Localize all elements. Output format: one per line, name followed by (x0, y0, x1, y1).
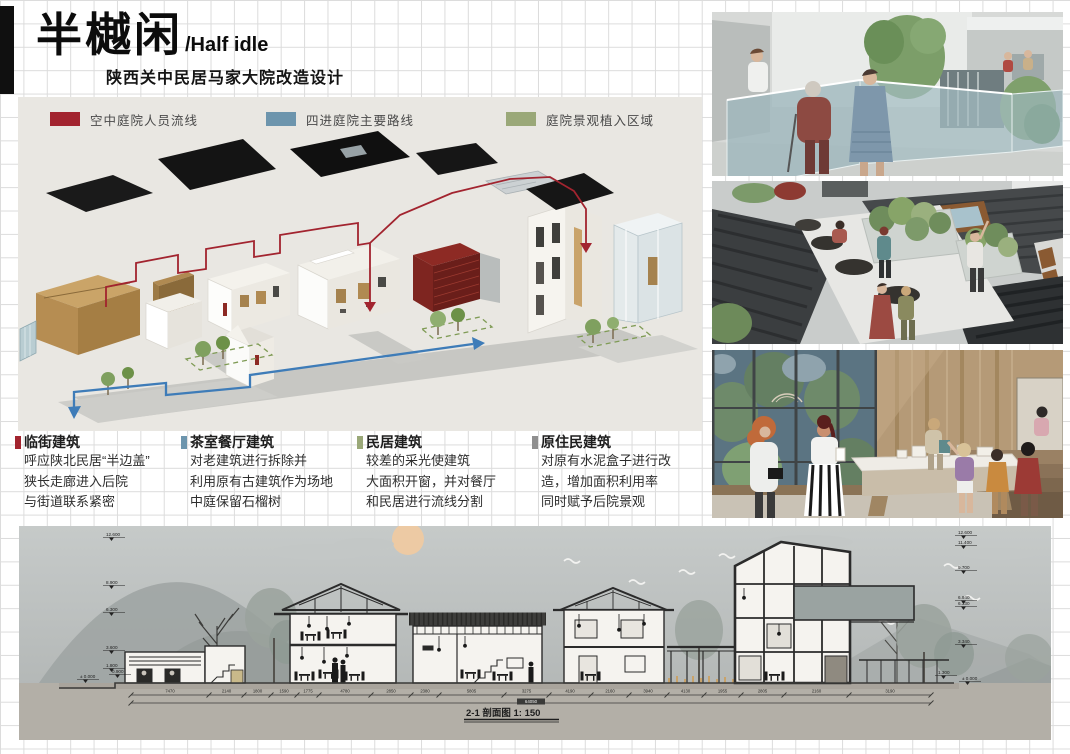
svg-text:5805: 5805 (467, 689, 477, 694)
legend-item: 空中庭院人员流线 (50, 111, 198, 127)
svg-text:6.940: 6.940 (958, 595, 970, 600)
annotation-line: 呼应陕北民居“半边盖” (24, 451, 150, 472)
annotation-block: 民居建筑较差的采光使建筑大面积开窗，并对餐厅和民居进行流线分割 (357, 433, 496, 518)
page-subtitle: 陕西关中民居马家大院改造设计 (106, 64, 344, 88)
glass-volumes (614, 213, 682, 323)
svg-text:2140: 2140 (222, 689, 232, 694)
annotation-line: 造，增加面积利用率 (541, 472, 671, 493)
wooden-building (18, 97, 140, 361)
svg-text:2160: 2160 (605, 689, 615, 694)
annotation-color-marker (357, 436, 363, 449)
svg-text:2160: 2160 (812, 689, 822, 694)
annotation-title: 原住民建筑 (532, 433, 671, 451)
svg-text:6.330: 6.330 (958, 601, 970, 606)
restaurant-building (298, 245, 400, 329)
svg-text:12.600: 12.600 (958, 530, 972, 535)
legend-swatch (266, 112, 296, 126)
annotation-title: 茶室餐厅建筑 (181, 433, 333, 451)
svg-text:± 0.000: ± 0.000 (80, 674, 96, 679)
svg-text:1775: 1775 (303, 689, 313, 694)
annotation-block: 临街建筑呼应陕北民居“半边盖”狭长走廊进入后院与街道联系紧密 (15, 433, 150, 518)
legend-swatch (506, 112, 536, 126)
annotation-line: 较差的采光使建筑 (366, 451, 496, 472)
legend-item: 四进庭院主要路线 (266, 111, 414, 127)
white-volume-cluster (146, 272, 202, 349)
svg-text:9.700: 9.700 (958, 565, 970, 570)
svg-text:7470: 7470 (165, 689, 175, 694)
legend-label: 空中庭院人员流线 (90, 110, 198, 129)
svg-text:1955: 1955 (718, 689, 728, 694)
annotation-color-marker (15, 436, 21, 449)
svg-text:1.300: 1.300 (938, 670, 950, 675)
title-chinese: 半樾闲 (36, 9, 183, 61)
axonometric-diagram-panel: 空中庭院人员流线四进庭院主要路线庭院景观植入区域 (18, 97, 702, 431)
annotation-block: 原住民建筑对原有水泥盒子进行改造，增加面积利用率同时赋予后院景观 (532, 433, 671, 518)
annotation-line: 对原有水泥盒子进行改 (541, 451, 671, 472)
svg-text:1590: 1590 (279, 689, 289, 694)
annotation-line: 狭长走廊进入后院 (24, 472, 150, 493)
legend-label: 四进庭院主要路线 (306, 110, 414, 129)
svg-text:3275: 3275 (522, 689, 532, 694)
svg-text:1800: 1800 (253, 689, 263, 694)
svg-text:± 0.000: ± 0.000 (962, 676, 978, 681)
svg-text:64050: 64050 (525, 699, 538, 704)
svg-text:3.340: 3.340 (958, 639, 970, 644)
svg-text:3.600: 3.600 (106, 645, 118, 650)
annotation-line: 和民居进行流线分割 (366, 492, 496, 513)
roof-terrace-render (712, 181, 1063, 344)
svg-text:3940: 3940 (643, 689, 653, 694)
window-wall (712, 350, 878, 495)
annotation-block: 茶室餐厅建筑对老建筑进行拆除并利用原有古建筑作为场地中庭保留石榴树 (181, 433, 333, 518)
svg-text:3190: 3190 (885, 689, 895, 694)
svg-text:2805: 2805 (758, 689, 768, 694)
section-drawing-panel: 12.6008.9006.3003.6001.8000.900± 0.000 1… (19, 526, 1051, 740)
tea-house-interior-render (712, 350, 1063, 518)
svg-text:6.300: 6.300 (106, 607, 118, 612)
svg-text:11.400: 11.400 (958, 540, 972, 545)
annotation-color-marker (181, 436, 187, 449)
presentation-board: 半樾闲/Half idle 陕西关中民居马家大院改造设计 (0, 0, 1070, 754)
svg-text:1.800: 1.800 (106, 663, 118, 668)
svg-text:2850: 2850 (386, 689, 396, 694)
svg-text:2-1 剖面图 1: 150: 2-1 剖面图 1: 150 (466, 707, 540, 719)
annotation-line: 同时赋予后院景观 (541, 492, 671, 513)
svg-text:4190: 4190 (565, 689, 575, 694)
annotation-line: 利用原有古建筑作为场地 (190, 472, 333, 493)
street-plan (58, 329, 698, 423)
svg-text:4780: 4780 (340, 689, 350, 694)
axonometric-diagram (18, 97, 702, 431)
annotation-line: 中庭保留石榴树 (190, 492, 333, 513)
annotation-line: 与街道联系紧密 (24, 492, 150, 513)
tea-house-building (208, 263, 290, 333)
annotation-line: 对老建筑进行拆除并 (190, 451, 333, 472)
legend-label: 庭院景观植入区域 (546, 110, 654, 129)
exploded-roofs (46, 131, 614, 212)
svg-text:12.600: 12.600 (106, 532, 120, 537)
red-brick-building (413, 243, 500, 312)
header-accent-bar (0, 6, 14, 94)
annotation-color-marker (532, 436, 538, 449)
annotation-title: 民居建筑 (357, 433, 496, 451)
annotation-title: 临街建筑 (15, 433, 150, 451)
svg-text:4130: 4130 (681, 689, 691, 694)
annotation-line: 大面积开窗，并对餐厅 (366, 472, 496, 493)
page-title: 半樾闲/Half idle (36, 10, 268, 61)
title-english: /Half idle (185, 34, 268, 56)
tall-residence-building (528, 205, 602, 333)
svg-text:0.900: 0.900 (112, 669, 124, 674)
legend-item: 庭院景观植入区域 (506, 111, 654, 127)
svg-text:8.900: 8.900 (106, 580, 118, 585)
sky-courtyard-render (712, 12, 1063, 176)
legend-swatch (50, 112, 80, 126)
svg-text:2380: 2380 (420, 689, 430, 694)
